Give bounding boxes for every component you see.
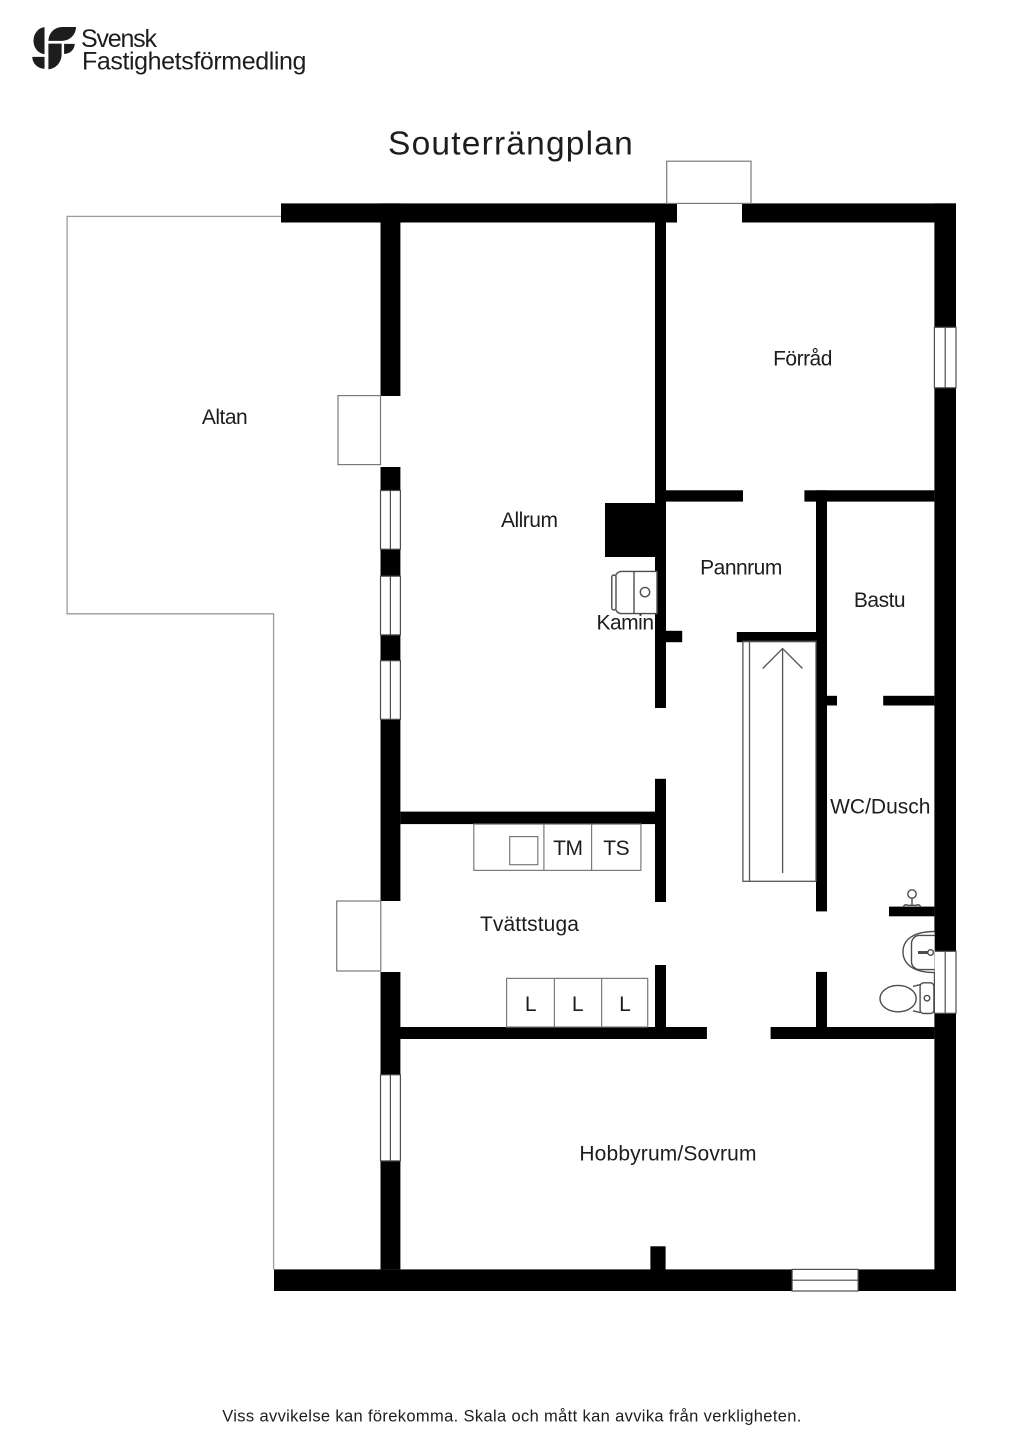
svg-text:L: L [572,993,583,1016]
svg-text:Altan: Altan [202,406,247,429]
svg-text:Tvättstuga: Tvättstuga [480,913,579,936]
svg-text:Allrum: Allrum [501,509,558,532]
svg-text:Viss avvikelse kan förekomma.: Viss avvikelse kan förekomma. Skala och … [222,1407,802,1425]
svg-text:L: L [619,993,630,1016]
svg-text:WC/Dusch: WC/Dusch [830,796,930,819]
svg-text:Bastu: Bastu [854,589,905,612]
svg-text:Souterrängplan: Souterrängplan [388,126,634,163]
svg-text:Förråd: Förråd [773,348,832,371]
svg-text:Hobbyrum/Sovrum: Hobbyrum/Sovrum [579,1143,756,1166]
svg-text:Pannrum: Pannrum [700,557,782,580]
svg-text:TS: TS [603,837,629,860]
svg-text:Kamin: Kamin [596,612,653,635]
svg-text:TM: TM [553,837,582,860]
svg-text:L: L [525,993,536,1016]
svg-text:Fastighetsförmedling: Fastighetsförmedling [82,48,306,76]
